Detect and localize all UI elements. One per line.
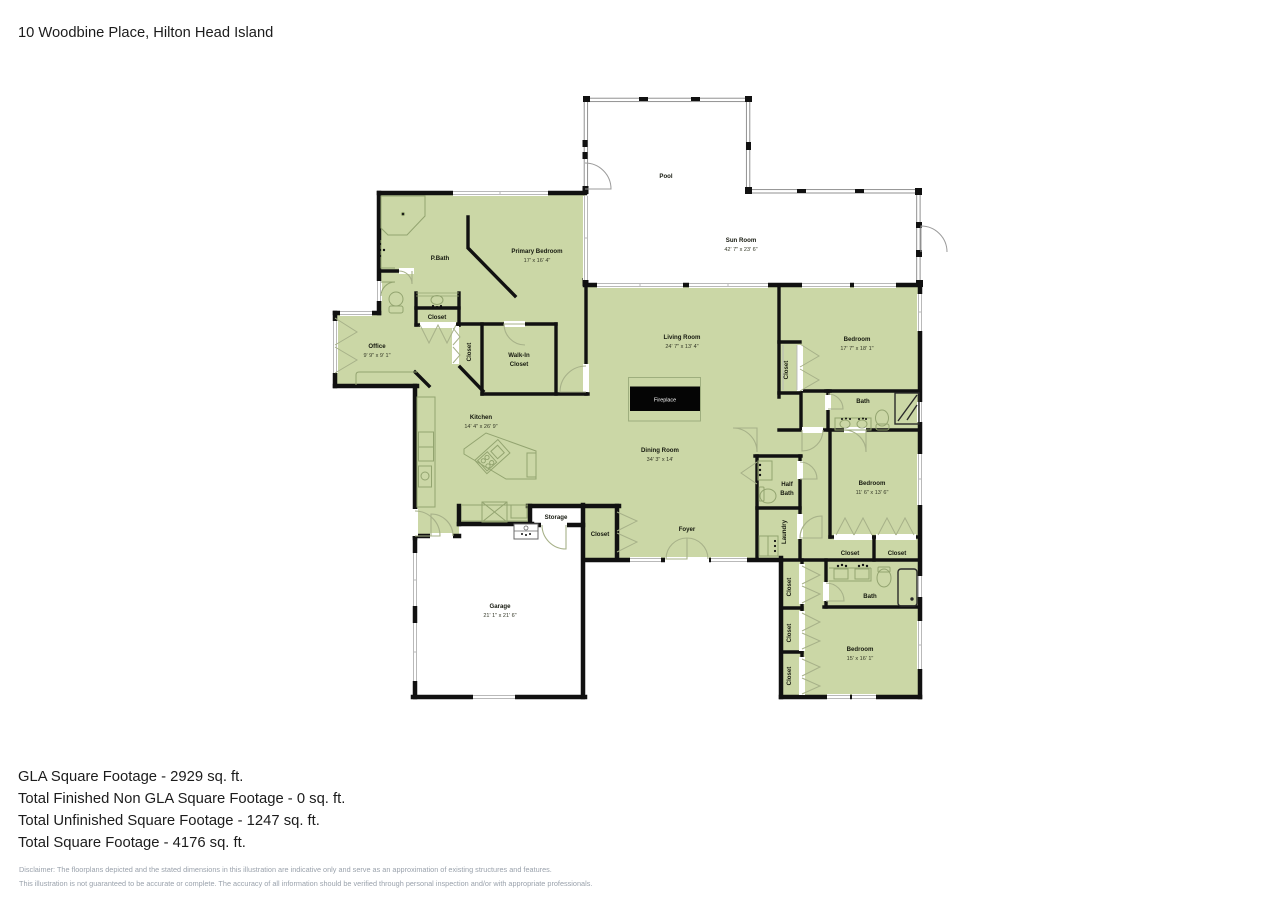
svg-text:34' 3" x 14': 34' 3" x 14' — [647, 457, 674, 463]
svg-text:Closet: Closet — [786, 667, 793, 686]
svg-text:Sun Room: Sun Room — [726, 237, 757, 244]
svg-text:Dining Room: Dining Room — [641, 447, 679, 454]
svg-text:Garage: Garage — [489, 603, 511, 610]
svg-text:Bedroom: Bedroom — [859, 480, 886, 487]
svg-text:15' x 16' 1": 15' x 16' 1" — [847, 656, 874, 662]
svg-text:Closet: Closet — [783, 361, 790, 380]
svg-text:Bath: Bath — [863, 593, 877, 600]
svg-text:Closet: Closet — [786, 578, 793, 597]
svg-text:Closet: Closet — [841, 550, 860, 557]
svg-text:24' 7" x 13' 4": 24' 7" x 13' 4" — [665, 344, 698, 350]
svg-text:17' 7" x 18' 1": 17' 7" x 18' 1" — [840, 346, 873, 352]
svg-text:21' 1" x 21' 6": 21' 1" x 21' 6" — [483, 613, 516, 619]
svg-text:Foyer: Foyer — [679, 526, 696, 533]
svg-text:Fireplace: Fireplace — [654, 398, 676, 404]
svg-text:Living Room: Living Room — [664, 334, 701, 341]
svg-text:Closet: Closet — [428, 314, 447, 321]
svg-text:Bedroom: Bedroom — [847, 646, 874, 653]
svg-text:9' 9" x 9' 1": 9' 9" x 9' 1" — [363, 353, 390, 359]
svg-text:Storage: Storage — [545, 514, 568, 521]
svg-text:17' x 16' 4": 17' x 16' 4" — [524, 258, 551, 264]
svg-text:Kitchen: Kitchen — [470, 414, 493, 421]
svg-text:Closet: Closet — [591, 531, 610, 538]
svg-text:Closet: Closet — [888, 550, 907, 557]
svg-text:Pool: Pool — [659, 173, 673, 180]
svg-text:Closet: Closet — [510, 361, 529, 368]
svg-text:Laundry: Laundry — [781, 519, 788, 544]
svg-text:42' 7" x 23' 6": 42' 7" x 23' 6" — [724, 247, 757, 253]
svg-text:Closet: Closet — [466, 343, 473, 362]
svg-text:Primary Bedroom: Primary Bedroom — [511, 248, 563, 255]
svg-text:Closet: Closet — [786, 624, 793, 643]
svg-text:Bath: Bath — [856, 398, 870, 405]
svg-text:14' 4" x 26' 9": 14' 4" x 26' 9" — [464, 424, 497, 430]
svg-text:Walk-In: Walk-In — [508, 352, 530, 359]
svg-text:Bedroom: Bedroom — [844, 336, 871, 343]
svg-text:P.Bath: P.Bath — [431, 255, 450, 262]
svg-text:Half: Half — [781, 481, 793, 488]
svg-text:Office: Office — [368, 343, 386, 350]
svg-text:Bath: Bath — [780, 490, 794, 497]
svg-text:11' 6" x 13' 6": 11' 6" x 13' 6" — [856, 490, 889, 496]
